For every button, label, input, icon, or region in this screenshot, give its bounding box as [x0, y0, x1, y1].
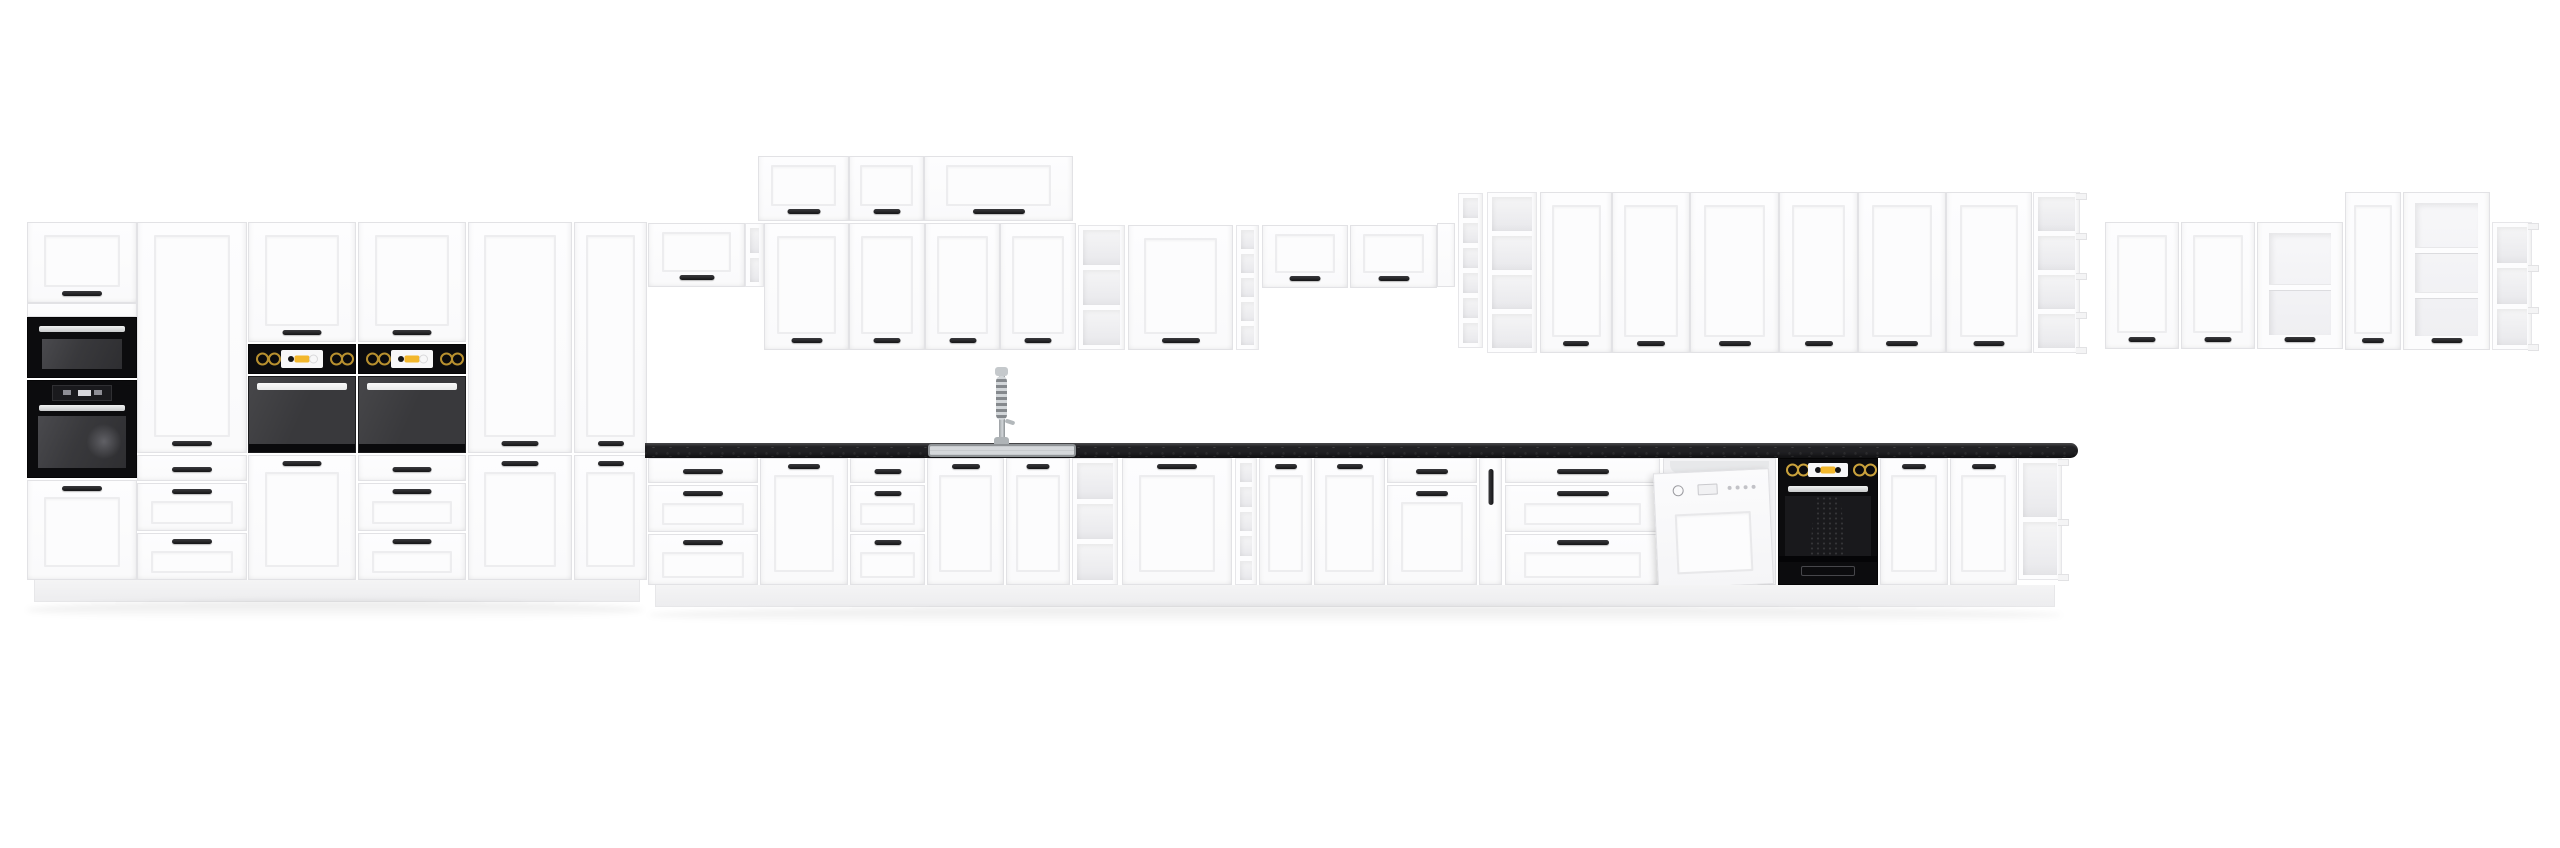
- tall-wall-door: [1858, 192, 1946, 353]
- door-handle: [2129, 337, 2156, 342]
- dishwasher-handle-recess: [1698, 483, 1718, 495]
- drawer-handle: [1557, 491, 1609, 496]
- door-handle: [874, 338, 901, 343]
- door-panel: [1275, 234, 1336, 273]
- oven-handle-bar: [367, 383, 456, 390]
- base-door: [1387, 485, 1477, 585]
- door-handle: [949, 338, 976, 343]
- drawer: [850, 458, 925, 483]
- oven-knob: [341, 353, 354, 366]
- door-handle: [973, 209, 1025, 214]
- door-handle: [2362, 338, 2384, 343]
- wall-lift-door: [1262, 225, 1348, 288]
- glass-pane: [2415, 203, 2478, 336]
- open-shelf-end: [2033, 192, 2080, 353]
- side-panel: [1437, 223, 1455, 287]
- door-handle: [172, 441, 212, 446]
- oven-housing-2-top-door: [358, 222, 466, 342]
- door-panel: [1144, 238, 1216, 334]
- display-glyph: [78, 390, 91, 396]
- dishwasher-indicator-dot: [1751, 485, 1755, 489]
- shelf-compartment: [2497, 268, 2527, 304]
- top-box-door: [758, 156, 849, 221]
- door-panel: [774, 475, 834, 572]
- wall-door: [2181, 222, 2255, 349]
- window-reflection: [1809, 496, 1847, 556]
- base-door: [1950, 458, 2017, 585]
- wall-end-shelf: [745, 223, 764, 287]
- door-panel: [1552, 205, 1601, 337]
- door-handle: [1416, 491, 1448, 496]
- display-dot: [1835, 467, 1841, 473]
- drawer-panel: [860, 552, 916, 578]
- microwave-window: [42, 339, 122, 369]
- oven-window: [1785, 496, 1871, 556]
- door-panel: [1363, 234, 1424, 273]
- top-box-door-wide: [924, 156, 1073, 221]
- drawer-panel: [1524, 503, 1640, 525]
- shelf-compartment: [1241, 254, 1254, 273]
- shelf-compartment: [1083, 310, 1120, 345]
- drawer-panel: [662, 552, 744, 578]
- door-panel: [937, 236, 988, 334]
- shelf-compartment: [1241, 326, 1254, 345]
- door-panel: [375, 235, 449, 326]
- drawer: [850, 485, 925, 532]
- door-panel: [1401, 502, 1463, 572]
- shelf-compartment: [750, 258, 759, 283]
- shelf-compartment: [1240, 512, 1252, 531]
- sink-base-door: [927, 458, 1004, 585]
- drawer: [358, 533, 466, 580]
- shelf-compartment: [750, 228, 759, 253]
- drawer-panel: [662, 503, 744, 525]
- door-handle: [1275, 464, 1297, 469]
- drawer-handle: [874, 491, 901, 496]
- door-panel: [1792, 205, 1846, 337]
- door-handle: [598, 461, 624, 466]
- faucet-lever: [1005, 419, 1016, 426]
- narrow-open-shelf: [1458, 193, 1483, 348]
- shelf-compartment: [1463, 323, 1478, 343]
- built-in-oven-tall: [27, 380, 137, 478]
- door-handle: [1972, 464, 1996, 469]
- shelf-compartment: [1077, 504, 1113, 540]
- kitchen-cabinet-set-product-image: [0, 0, 2560, 848]
- door-handle: [1157, 464, 1197, 469]
- wall-door: [764, 223, 849, 350]
- drawer: [358, 483, 466, 531]
- drawer-panel: [151, 501, 233, 524]
- oven-handle-bar: [257, 383, 346, 390]
- drawer-handle: [1557, 469, 1609, 474]
- tall-wall-door: [1779, 192, 1858, 353]
- drawer-panel: [860, 503, 916, 525]
- door-panel: [771, 165, 835, 206]
- display-yellow-indicator: [1821, 467, 1836, 474]
- door-handle: [62, 291, 102, 296]
- wall-cabinet-door: [648, 223, 745, 287]
- door-handle: [1025, 338, 1052, 343]
- shelf-compartment: [1240, 536, 1252, 555]
- pantry-large-door: [137, 222, 247, 453]
- door-handle: [2205, 337, 2232, 342]
- drawer-handle: [1557, 540, 1609, 545]
- door-panel: [860, 165, 913, 206]
- glass-shelf: [2415, 247, 2478, 254]
- base-door: [1259, 458, 1312, 585]
- display-dot: [398, 356, 404, 362]
- door-panel: [2354, 205, 2392, 334]
- shelf-compartment: [1077, 544, 1113, 580]
- narrow-open-shelf: [1235, 458, 1257, 585]
- shelf-compartment: [1077, 463, 1113, 499]
- top-box-door: [849, 156, 924, 221]
- shelf-lip: [2076, 193, 2087, 200]
- floor-shadow: [648, 606, 2062, 624]
- door-panel: [1012, 236, 1064, 334]
- door-handle: [679, 275, 714, 280]
- drawer-handle: [683, 540, 723, 545]
- shelf-lip: [2058, 519, 2069, 526]
- shelf-lip: [2528, 223, 2539, 230]
- shelf-compartment: [1083, 230, 1120, 265]
- microwave: [27, 317, 137, 378]
- drawer: [1505, 534, 1660, 585]
- display-glyph: [94, 390, 102, 395]
- shelf-lip: [2076, 273, 2087, 280]
- base-door: [1314, 458, 1385, 585]
- door-panel: [484, 235, 555, 437]
- wall-door: [1000, 223, 1076, 350]
- drawer-handle: [172, 489, 212, 494]
- open-shelf: [1487, 192, 1537, 353]
- shelf-compartment: [1241, 230, 1254, 249]
- tall-wall-door: [1540, 192, 1612, 353]
- shelf-compartment: [1463, 198, 1478, 218]
- pantry-upper-door: [574, 222, 647, 453]
- pullout-handle: [1488, 469, 1493, 505]
- glass-pane: [2269, 233, 2331, 335]
- drawer: [1505, 485, 1660, 532]
- base-door: [1122, 458, 1232, 585]
- oven-display: [391, 350, 433, 368]
- door-handle: [1974, 341, 2005, 346]
- plinth-left: [34, 580, 640, 602]
- shelf-lip: [2076, 312, 2087, 319]
- door-handle: [2285, 337, 2316, 342]
- door-handle: [787, 209, 820, 214]
- dishwasher-indicator-dot: [1743, 485, 1747, 489]
- door-panel: [1704, 205, 1765, 337]
- door-panel: [484, 472, 555, 567]
- drawer-handle: [683, 469, 723, 474]
- drawer-handle: [874, 540, 901, 545]
- glass-shelf: [2269, 284, 2331, 291]
- door-panel: [44, 235, 120, 287]
- drawer: [137, 533, 247, 580]
- door-handle: [393, 330, 432, 335]
- drawer-handle: [393, 467, 432, 472]
- drawer-panel: [151, 551, 233, 573]
- shelf-lip: [2076, 347, 2087, 354]
- shelf-compartment: [1241, 278, 1254, 297]
- narrow-open-shelf: [1236, 225, 1259, 350]
- door-panel: [2117, 235, 2167, 333]
- door-panel: [265, 235, 339, 326]
- oven-housing-1-bottom-door: [248, 455, 356, 580]
- shelf-compartment: [1492, 197, 1532, 231]
- oven-knob: [378, 353, 391, 366]
- oven-divider: [1779, 556, 1877, 562]
- floor-shadow: [26, 601, 644, 619]
- oven-control-panel: [248, 344, 356, 374]
- oven-window: [38, 416, 127, 468]
- pantry-lower-door: [574, 455, 647, 580]
- plinth-base: [655, 585, 2055, 607]
- door-handle: [791, 338, 822, 343]
- door-handle: [1337, 464, 1363, 469]
- shelf-compartment: [1463, 223, 1478, 243]
- shelf-compartment: [2038, 314, 2075, 348]
- door-handle: [1290, 276, 1321, 281]
- built-in-oven-base: [1778, 458, 1878, 585]
- base-door: [760, 458, 848, 585]
- shelf-lip: [2528, 265, 2539, 272]
- door-handle: [788, 464, 820, 469]
- tall-wall-door: [1946, 192, 2032, 353]
- drawer: [1505, 458, 1660, 483]
- shelf-compartment: [2038, 236, 2075, 270]
- wall-door: [849, 223, 925, 350]
- door-panel: [1325, 475, 1373, 572]
- door-panel: [586, 472, 636, 567]
- drawer-handle: [393, 489, 432, 494]
- drawer: [137, 483, 247, 531]
- shelf-lip: [2528, 344, 2539, 351]
- door-handle: [598, 441, 624, 446]
- door-handle: [1902, 464, 1926, 469]
- oven-bottom-strip: [359, 444, 465, 452]
- oven-housing-1-top-door: [248, 222, 356, 342]
- wall-lift-door: [1350, 225, 1437, 288]
- door-panel: [777, 236, 835, 334]
- door-handle: [1378, 276, 1409, 281]
- door-panel: [1961, 475, 2007, 572]
- shelf-compartment: [1463, 298, 1478, 318]
- dishwasher-power-dial: [1673, 485, 1684, 496]
- shelf-compartment: [1240, 561, 1252, 580]
- door-panel: [44, 497, 120, 567]
- door-panel: [939, 475, 992, 572]
- dishwasher-indicator-dot: [1735, 485, 1739, 489]
- door-handle: [283, 330, 322, 335]
- display-glyph: [63, 390, 71, 395]
- door-panel: [1624, 205, 1677, 337]
- door-panel: [861, 236, 913, 334]
- door-panel: [662, 232, 730, 272]
- display-dot: [288, 356, 294, 362]
- oven-control-panel: [358, 344, 466, 374]
- door-panel: [586, 235, 636, 437]
- drawer: [358, 455, 466, 481]
- drawer: [137, 455, 247, 481]
- tall-glass-wall-door: [2403, 192, 2490, 350]
- door-handle: [1162, 338, 1200, 343]
- faucet: [991, 367, 1015, 444]
- door-handle: [62, 486, 102, 491]
- drawer-panel: [372, 551, 453, 573]
- door-panel: [154, 235, 230, 437]
- door-panel: [2193, 235, 2243, 333]
- dishwasher-door: [1653, 468, 1774, 589]
- oven-knob: [451, 353, 464, 366]
- drawer-handle: [1416, 469, 1448, 474]
- drawer-panel: [372, 501, 453, 524]
- door-panel: [1139, 475, 1215, 572]
- tall-wall-door: [1690, 192, 1779, 353]
- oven-display: [281, 350, 323, 368]
- drawer-panel: [1524, 552, 1640, 578]
- base-door: [1880, 458, 1948, 585]
- shelf-lip: [2076, 233, 2087, 240]
- sink: [928, 444, 1076, 457]
- faucet-base: [994, 437, 1009, 444]
- door-panel: [946, 165, 1052, 206]
- oven-display: [1808, 463, 1847, 477]
- door-handle: [1027, 464, 1050, 469]
- drawer-handle: [874, 469, 901, 474]
- shelf-lip: [2058, 459, 2069, 466]
- drawer-handle: [172, 539, 212, 544]
- tall-wall-door: [1612, 192, 1690, 353]
- display-yellow-indicator: [405, 356, 420, 363]
- door-handle: [502, 441, 539, 446]
- drawer: [648, 534, 758, 585]
- shelf-compartment: [1492, 236, 1532, 270]
- shelf-compartment: [2497, 227, 2527, 263]
- oven-drawer-outline: [1801, 566, 1856, 576]
- shelf-compartment: [2038, 197, 2075, 231]
- tall-column-top-door: [27, 222, 137, 303]
- door-handle: [2431, 338, 2462, 343]
- drawer-handle: [683, 491, 723, 496]
- filler-strip: [27, 303, 137, 317]
- shelf-compartment: [1241, 302, 1254, 321]
- display-yellow-indicator: [295, 356, 310, 363]
- door-panel: [1872, 205, 1932, 337]
- door-handle: [1563, 341, 1589, 346]
- drawer-handle: [172, 467, 212, 472]
- door-handle: [283, 461, 322, 466]
- oven-handle-bar: [39, 405, 125, 411]
- door-panel: [1016, 475, 1059, 572]
- dishwasher-door-panel: [1675, 511, 1753, 575]
- drawer-handle: [393, 539, 432, 544]
- drawer: [648, 485, 758, 532]
- oven-bottom-strip: [249, 444, 355, 452]
- door-handle: [502, 461, 539, 466]
- pantry-lower-door: [468, 455, 572, 580]
- sink-base-door: [1006, 458, 1070, 585]
- oven-knob: [268, 353, 281, 366]
- oven-knob: [1864, 464, 1877, 477]
- pantry-upper-door: [468, 222, 572, 453]
- shelf-compartment: [1463, 273, 1478, 293]
- door-handle: [952, 464, 980, 469]
- shelf-compartment: [1240, 463, 1252, 482]
- door-panel: [1891, 475, 1937, 572]
- door-panel: [1268, 475, 1304, 572]
- door-panel: [265, 472, 339, 567]
- glass-shelf: [2415, 292, 2478, 299]
- wall-door: [1128, 225, 1233, 350]
- worktop: [645, 443, 2078, 458]
- wall-door: [2105, 222, 2179, 349]
- window-reflection: [87, 423, 121, 459]
- tall-wall-door: [2345, 192, 2401, 350]
- corner-open-shelf: [2492, 222, 2532, 350]
- shelf-compartment: [2497, 309, 2527, 345]
- built-in-oven: [248, 376, 356, 453]
- open-shelf: [1072, 458, 1118, 585]
- door-panel: [1960, 205, 2019, 337]
- shelf-lip: [2058, 574, 2069, 581]
- display-ring: [419, 355, 428, 364]
- faucet-spout-head: [995, 367, 1008, 376]
- wall-door: [925, 223, 1000, 350]
- shelf-compartment: [1492, 314, 1532, 348]
- shelf-compartment: [1083, 270, 1120, 305]
- faucet-spring-coil: [996, 376, 1007, 420]
- oven-control-strip: [1779, 459, 1877, 481]
- open-shelf: [1078, 225, 1125, 350]
- door-handle: [873, 209, 900, 214]
- shelf-lip: [2528, 307, 2539, 314]
- drawer: [850, 534, 925, 585]
- base-end-shelf: [2018, 458, 2062, 580]
- pullout-front: [1479, 458, 1502, 585]
- shelf-compartment: [1492, 275, 1532, 309]
- dishwasher: [1663, 458, 1776, 585]
- oven-display: [52, 385, 113, 401]
- built-in-oven: [358, 376, 466, 453]
- shelf-compartment: [1463, 248, 1478, 268]
- microwave-handle-bar: [39, 326, 125, 332]
- display-ring: [309, 355, 318, 364]
- door-handle: [1886, 341, 1918, 346]
- drawer: [648, 458, 758, 483]
- door-handle: [1637, 341, 1665, 346]
- drawer: [1387, 458, 1477, 483]
- dishwasher-indicator-dot: [1727, 486, 1731, 490]
- door-handle: [1805, 341, 1833, 346]
- tall-column-bottom-door: [27, 480, 137, 580]
- shelf-compartment: [2023, 463, 2057, 517]
- door-handle: [1719, 341, 1751, 346]
- glass-wall-door: [2257, 222, 2343, 349]
- oven-handle-bar: [1788, 486, 1868, 492]
- shelf-compartment: [2038, 275, 2075, 309]
- shelf-compartment: [1240, 487, 1252, 506]
- shelf-compartment: [2023, 522, 2057, 576]
